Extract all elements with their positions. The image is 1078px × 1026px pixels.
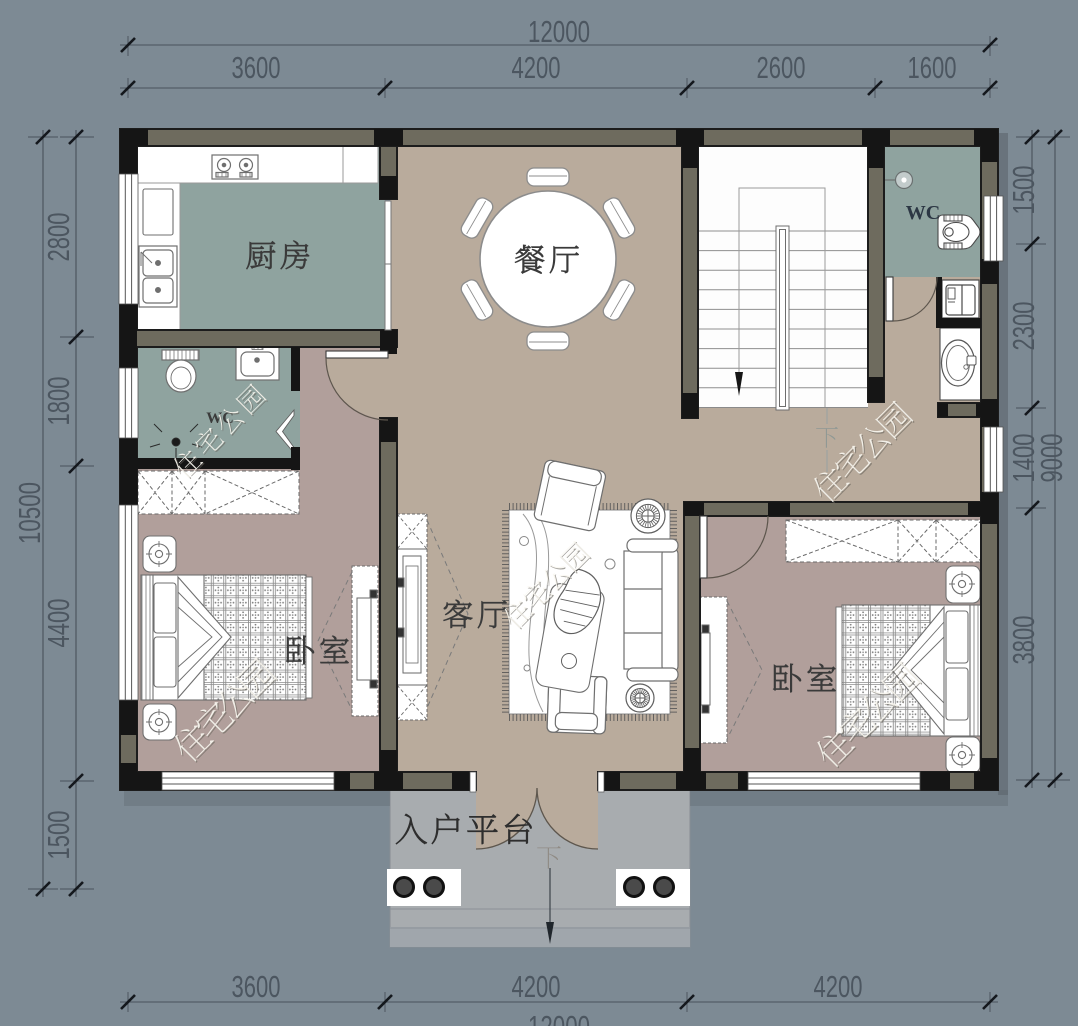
svg-text:2300: 2300 — [1006, 302, 1041, 351]
svg-text:4200: 4200 — [512, 969, 561, 1004]
svg-text:10500: 10500 — [12, 482, 47, 544]
svg-text:1500: 1500 — [1006, 166, 1041, 215]
svg-text:4200: 4200 — [814, 969, 863, 1004]
svg-text:2600: 2600 — [757, 50, 806, 85]
svg-text:1800: 1800 — [41, 377, 76, 426]
svg-text:3600: 3600 — [232, 50, 281, 85]
svg-text:4200: 4200 — [512, 50, 561, 85]
svg-text:4400: 4400 — [41, 599, 76, 648]
svg-text:2800: 2800 — [41, 213, 76, 262]
svg-text:1600: 1600 — [908, 50, 957, 85]
svg-text:3600: 3600 — [232, 969, 281, 1004]
svg-text:WC: WC — [906, 202, 940, 224]
svg-text:9000: 9000 — [1034, 434, 1069, 483]
svg-text:12000: 12000 — [528, 14, 590, 49]
svg-text:1500: 1500 — [41, 811, 76, 860]
svg-text:3800: 3800 — [1006, 616, 1041, 665]
svg-text:12000: 12000 — [528, 1009, 590, 1026]
